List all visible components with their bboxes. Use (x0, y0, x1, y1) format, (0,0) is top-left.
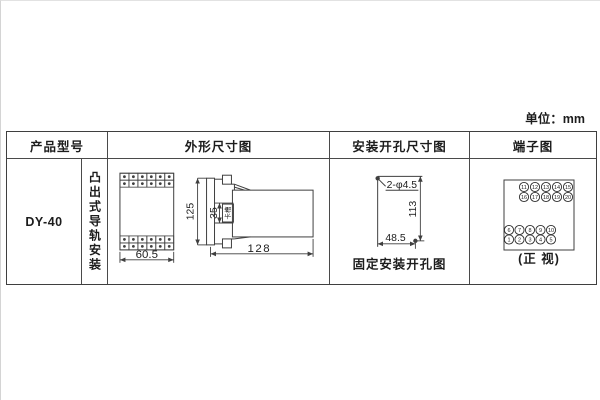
mounting-type-vertical-text: 凸出式导轨安装 (89, 171, 101, 273)
mounting-drawing-cell: 113 48.5 2-φ4.5 固定安装开孔图 (330, 159, 470, 284)
svg-text:15: 15 (565, 185, 571, 191)
svg-text:4: 4 (539, 237, 542, 243)
svg-text:10: 10 (548, 228, 554, 234)
svg-text:6: 6 (507, 228, 510, 234)
svg-text:12: 12 (532, 185, 538, 191)
svg-text:11: 11 (521, 185, 527, 191)
svg-text:19: 19 (554, 195, 560, 201)
mounting-diagram: 113 48.5 2-φ4.5 固定安装开孔图 (330, 159, 469, 284)
svg-text:20: 20 (565, 195, 571, 201)
dim-side-height: 125 (186, 203, 197, 221)
datasheet-page: 单位：mm 产品型号 外形尺寸图 安装开孔尺寸图 端子图 DY-40 凸出式导轨… (0, 0, 600, 400)
slot-label: 卡槽 (223, 206, 232, 219)
bottom-hole-dot (413, 239, 417, 243)
terminal-diagram: 11121314151617181920 67891012345 (正 视) (470, 159, 596, 284)
svg-text:5: 5 (549, 237, 552, 243)
svg-text:18: 18 (543, 195, 549, 201)
terminal-top-group: 11121314151617181920 (519, 182, 572, 201)
dim-hole-horizontal: 48.5 (385, 233, 405, 244)
holes-label: 2-φ4.5 (387, 180, 418, 191)
svg-text:17: 17 (532, 195, 538, 201)
svg-text:2: 2 (518, 237, 521, 243)
svg-text:3: 3 (528, 237, 531, 243)
unit-label: 单位：mm (471, 108, 585, 127)
svg-text:13: 13 (543, 185, 549, 191)
header-terminal: 端子图 (470, 132, 596, 159)
svg-text:8: 8 (528, 228, 531, 234)
side-view: 125 35 卡槽 (186, 175, 313, 257)
terminal-caption: (正 视) (518, 251, 560, 266)
header-outline: 外形尺寸图 (108, 132, 330, 159)
front-view: 60.5 (120, 173, 174, 263)
svg-text:9: 9 (539, 228, 542, 234)
svg-text:16: 16 (521, 195, 527, 201)
dim-front-width: 60.5 (136, 249, 158, 261)
dim-slot-height: 35 (209, 207, 220, 219)
mounting-type-cell: 凸出式导轨安装 (82, 159, 108, 284)
outline-drawing-cell: 60.5 125 35 卡槽 (108, 159, 330, 284)
terminal-bottom-group: 67891012345 (504, 225, 555, 244)
product-model-value: DY-40 (7, 159, 82, 284)
mounting-caption: 固定安装开孔图 (353, 257, 447, 272)
svg-text:14: 14 (554, 185, 560, 191)
front-top-terminals (120, 173, 174, 187)
svg-text:7: 7 (518, 228, 521, 234)
dim-side-depth: 128 (248, 243, 272, 255)
outline-diagram: 60.5 125 35 卡槽 (108, 159, 329, 284)
spec-table: 产品型号 外形尺寸图 安装开孔尺寸图 端子图 DY-40 凸出式导轨安装 60.… (6, 131, 597, 285)
header-mounting: 安装开孔尺寸图 (330, 132, 470, 159)
front-bottom-terminals (120, 236, 174, 250)
svg-text:1: 1 (507, 237, 510, 243)
dim-hole-vertical: 113 (408, 201, 419, 218)
header-product-model: 产品型号 (7, 132, 108, 159)
terminal-diagram-cell: 11121314151617181920 67891012345 (正 视) (470, 159, 596, 284)
